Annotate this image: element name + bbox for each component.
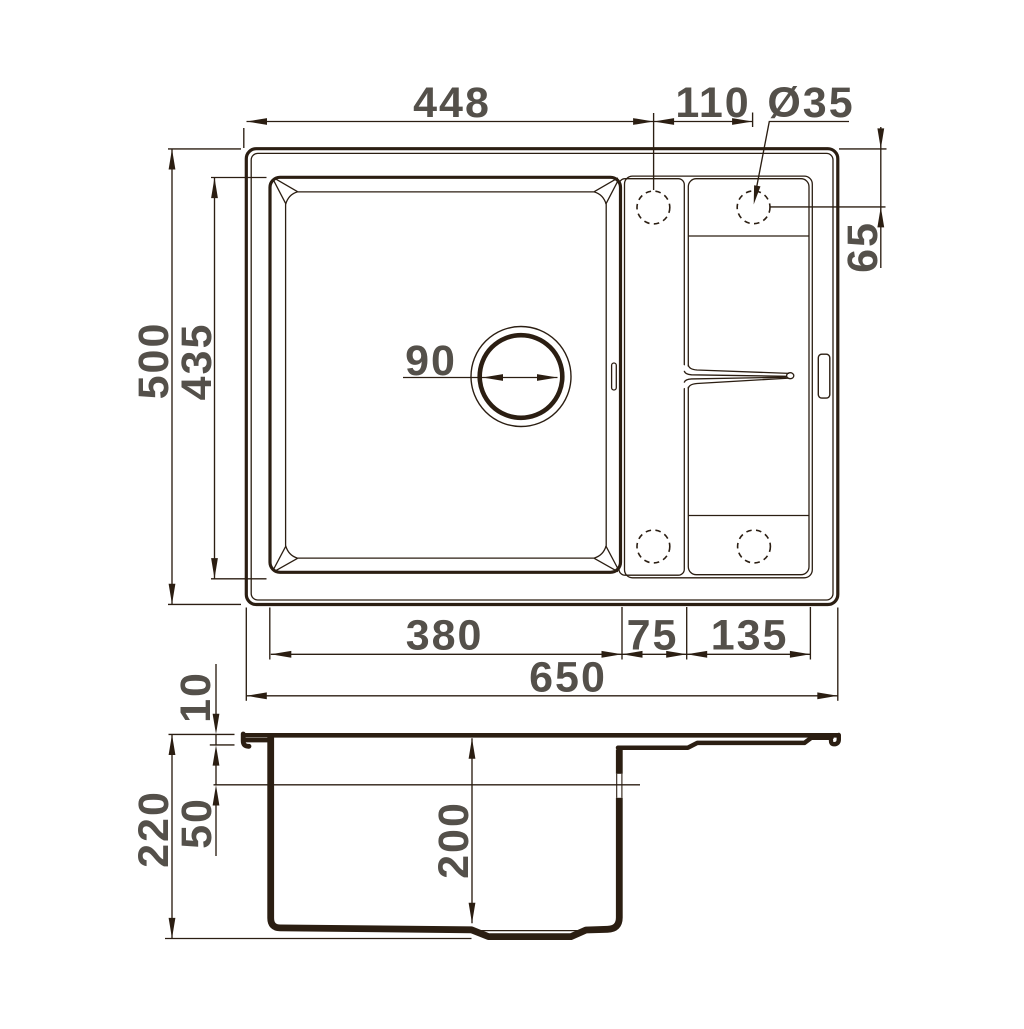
svg-text:110: 110	[675, 79, 750, 127]
svg-text:10: 10	[172, 671, 220, 723]
svg-text:90: 90	[405, 337, 457, 385]
svg-text:200: 200	[430, 801, 478, 879]
svg-text:500: 500	[130, 322, 178, 400]
svg-text:220: 220	[130, 790, 178, 868]
svg-text:435: 435	[173, 323, 221, 401]
svg-text:50: 50	[173, 797, 221, 849]
svg-text:75: 75	[627, 612, 679, 660]
svg-text:Ø35: Ø35	[767, 79, 854, 127]
svg-text:65: 65	[839, 221, 887, 273]
svg-text:135: 135	[711, 612, 789, 660]
svg-text:650: 650	[529, 654, 607, 702]
svg-text:380: 380	[406, 612, 484, 660]
svg-text:448: 448	[413, 79, 491, 127]
